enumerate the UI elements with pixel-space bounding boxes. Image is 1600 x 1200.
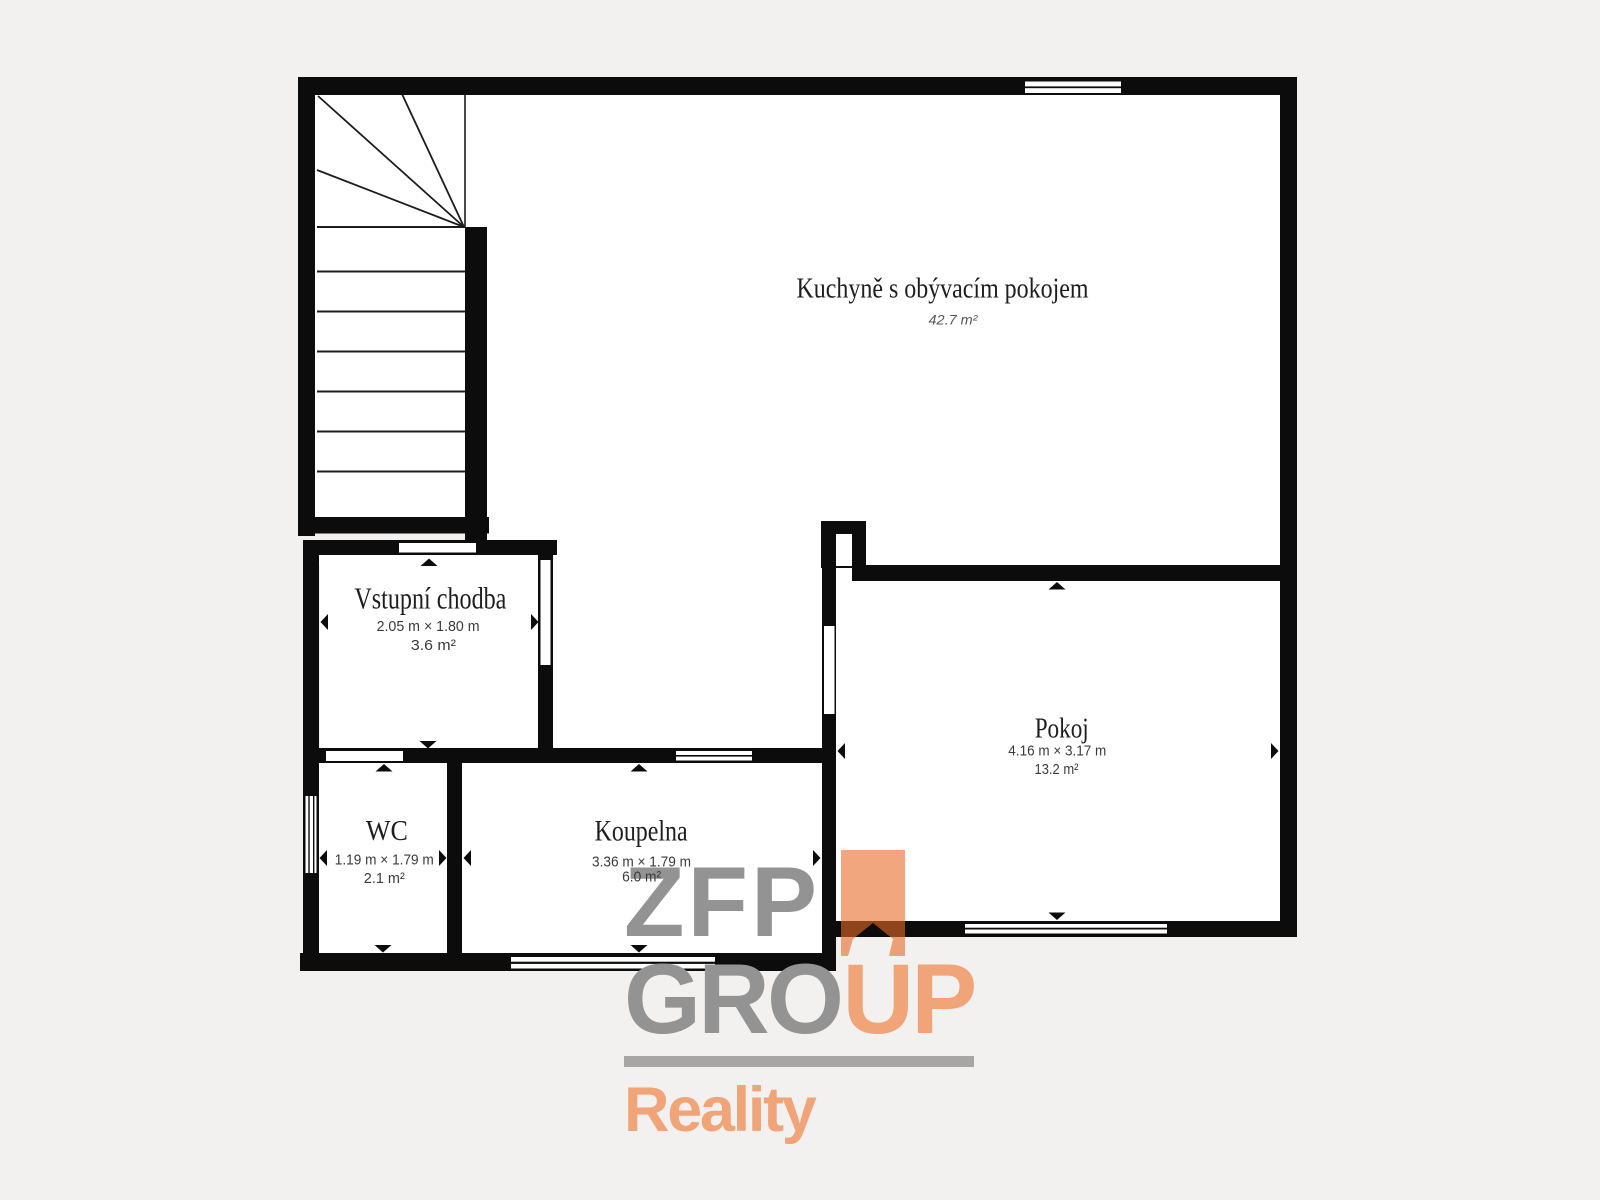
- svg-text:Koupelna: Koupelna: [595, 814, 688, 847]
- svg-text:3.6 m²: 3.6 m²: [411, 637, 456, 654]
- svg-text:GRO: GRO: [624, 943, 841, 1054]
- svg-text:UP: UP: [843, 943, 975, 1054]
- svg-text:2.05 m × 1.80 m: 2.05 m × 1.80 m: [377, 618, 480, 635]
- svg-text:1.19 m × 1.79 m: 1.19 m × 1.79 m: [335, 852, 434, 869]
- svg-text:WC: WC: [366, 815, 408, 847]
- svg-text:Kuchyně s obývacím pokojem: Kuchyně s obývacím pokojem: [797, 274, 1089, 305]
- svg-text:Reality: Reality: [624, 1075, 817, 1145]
- svg-text:4.16 m × 3.17 m: 4.16 m × 3.17 m: [1008, 743, 1106, 760]
- svg-text:Vstupní chodba: Vstupní chodba: [354, 581, 506, 616]
- svg-text:Pokoj: Pokoj: [1035, 713, 1089, 745]
- svg-text:6.0 m²: 6.0 m²: [622, 869, 661, 886]
- svg-text:13.2 m²: 13.2 m²: [1035, 761, 1079, 778]
- svg-text:42.7 m²: 42.7 m²: [929, 313, 979, 328]
- svg-text:2.1 m²: 2.1 m²: [364, 870, 405, 887]
